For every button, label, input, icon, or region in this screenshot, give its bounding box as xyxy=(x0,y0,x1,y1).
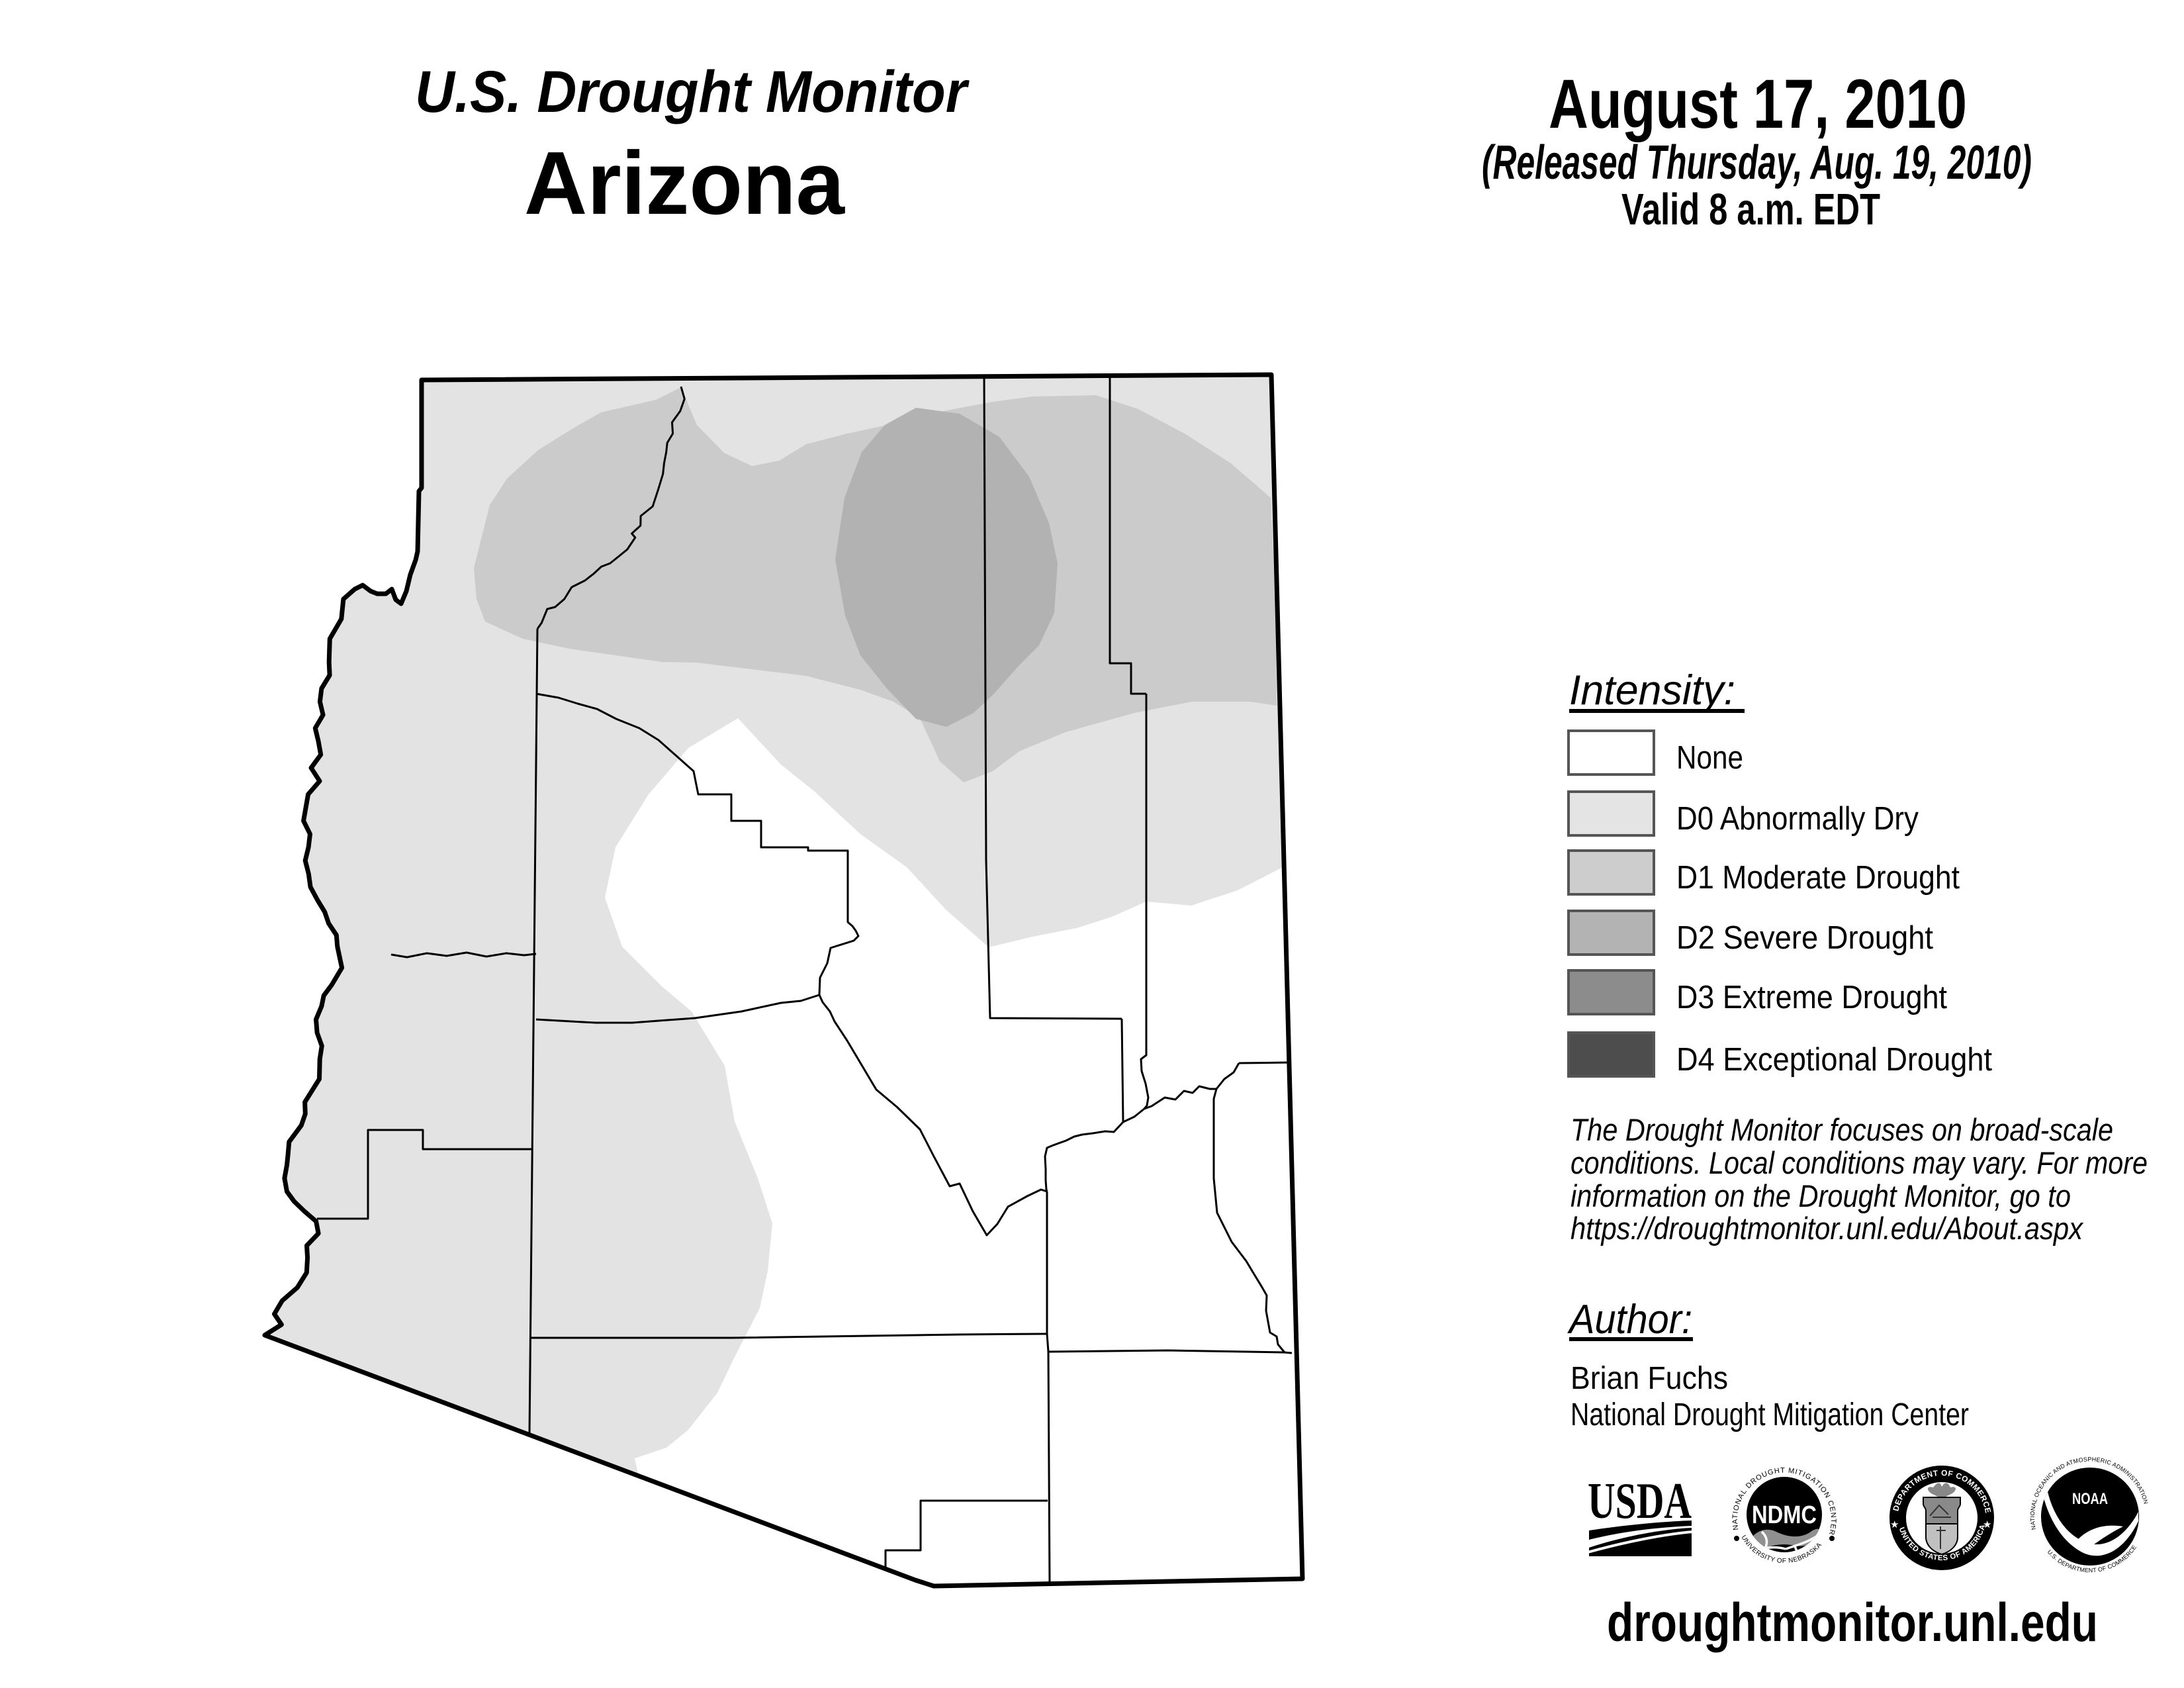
svg-text:conditions. Local conditions m: conditions. Local conditions may vary. F… xyxy=(1570,1145,2148,1180)
svg-text:D2 Severe Drought: D2 Severe Drought xyxy=(1676,920,1933,956)
svg-text:Author:: Author: xyxy=(1567,1297,1692,1342)
svg-text:The Drought Monitor focuses on: The Drought Monitor focuses on broad-sca… xyxy=(1570,1112,2113,1147)
svg-text:D3 Extreme Drought: D3 Extreme Drought xyxy=(1676,980,1947,1015)
svg-text:USDA: USDA xyxy=(1588,1472,1692,1529)
svg-text:August 17, 2010: August 17, 2010 xyxy=(1549,66,1967,143)
svg-text:information on the Drought Mon: information on the Drought Monitor, go t… xyxy=(1570,1178,2071,1213)
svg-text:https://droughtmonitor.unl.edu: https://droughtmonitor.unl.edu/About.asp… xyxy=(1570,1211,2083,1246)
svg-text:Brian Fuchs: Brian Fuchs xyxy=(1570,1361,1728,1396)
svg-text:D0 Abnormally Dry: D0 Abnormally Dry xyxy=(1676,801,1919,837)
svg-text:(Released Thursday, Aug. 19, 2: (Released Thursday, Aug. 19, 2010) xyxy=(1482,136,2032,189)
svg-text:droughtmonitor.unl.edu: droughtmonitor.unl.edu xyxy=(1607,1593,2098,1653)
svg-text:Arizona: Arizona xyxy=(524,133,845,233)
svg-text:D1 Moderate Drought: D1 Moderate Drought xyxy=(1676,860,1960,896)
svg-text:None: None xyxy=(1676,740,1743,776)
svg-text:Intensity:: Intensity: xyxy=(1569,667,1735,714)
svg-text:★: ★ xyxy=(1983,1519,1991,1530)
svg-text:NOAA: NOAA xyxy=(2072,1490,2108,1508)
svg-text:NDMC: NDMC xyxy=(1752,1501,1817,1529)
svg-text:National Drought Mitigation Ce: National Drought Mitigation Center xyxy=(1570,1397,1969,1432)
svg-text:★: ★ xyxy=(1890,1519,1899,1530)
svg-text:U.S. Drought Monitor: U.S. Drought Monitor xyxy=(415,58,970,124)
svg-text:D4 Exceptional Drought: D4 Exceptional Drought xyxy=(1676,1042,1992,1078)
svg-text:Valid 8 a.m. EDT: Valid 8 a.m. EDT xyxy=(1621,185,1880,234)
